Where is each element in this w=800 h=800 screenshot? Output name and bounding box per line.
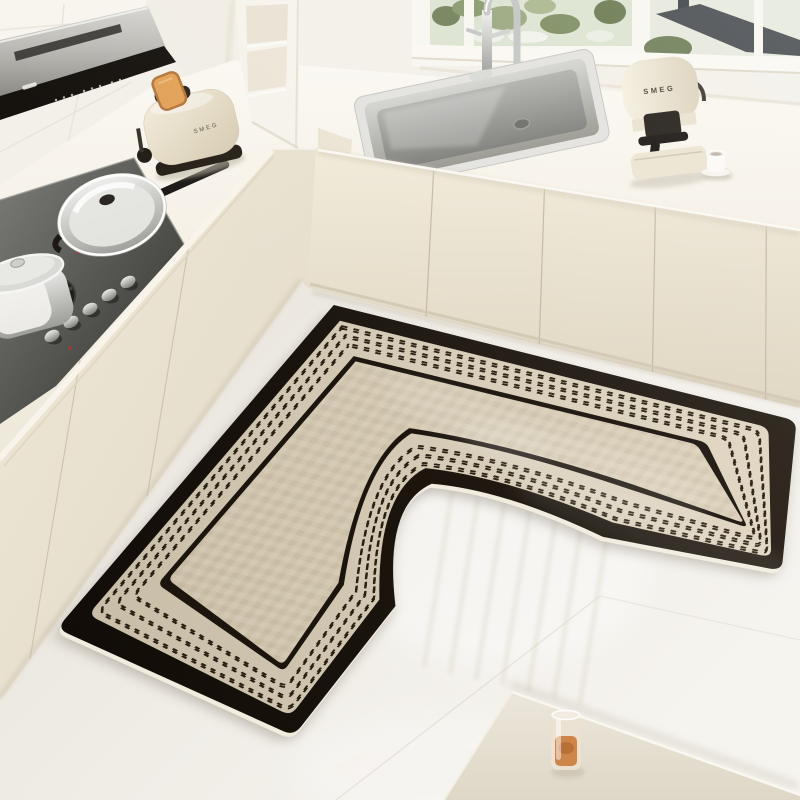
kitchen-scene: SMEG SMEG — [0, 0, 800, 800]
light-sheen-overlay — [0, 0, 800, 800]
kitchen-photo: SMEG SMEG — [0, 0, 800, 800]
